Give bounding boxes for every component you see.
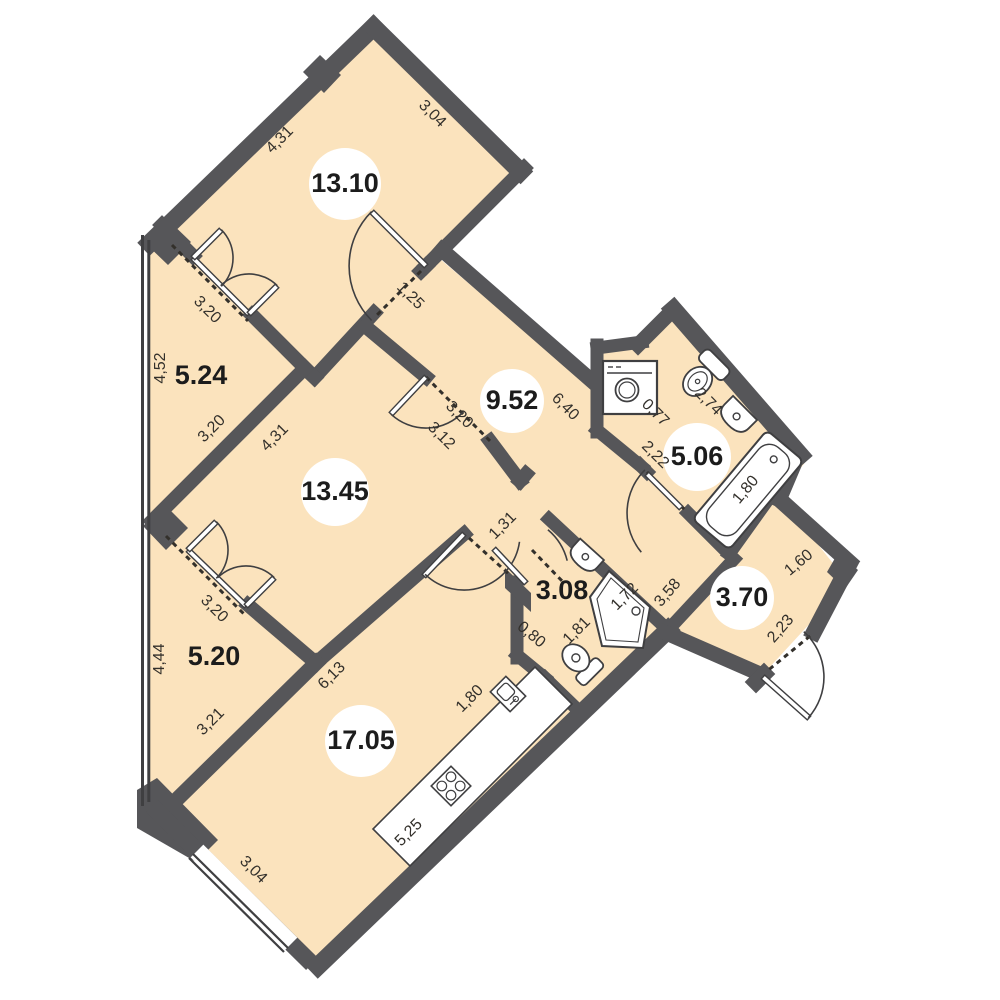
svg-text:17.05: 17.05 <box>327 725 395 755</box>
svg-text:9.52: 9.52 <box>486 385 539 415</box>
svg-text:5.24: 5.24 <box>175 360 228 390</box>
svg-text:13.45: 13.45 <box>301 476 369 506</box>
svg-text:4,44: 4,44 <box>151 643 168 674</box>
svg-text:4,52: 4,52 <box>152 352 169 383</box>
svg-text:3.70: 3.70 <box>716 582 769 612</box>
svg-text:13.10: 13.10 <box>311 168 379 198</box>
svg-text:5.20: 5.20 <box>188 641 241 671</box>
svg-text:3.08: 3.08 <box>536 575 589 605</box>
svg-text:5.06: 5.06 <box>671 441 724 471</box>
